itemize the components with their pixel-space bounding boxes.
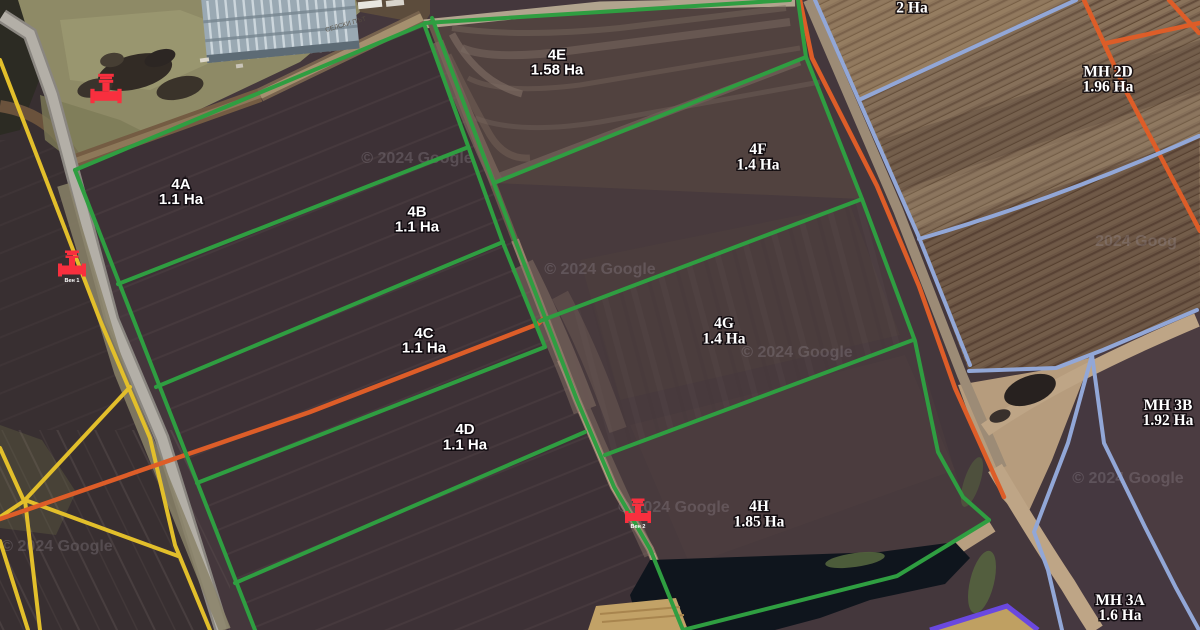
svg-text:© 2024 Google: © 2024 Google [544,261,655,278]
svg-text:Вен 1: Вен 1 [65,278,80,284]
svg-text:1.1 Ha: 1.1 Ha [402,340,447,357]
svg-text:4G: 4G [714,315,734,332]
svg-text:4H: 4H [749,498,769,515]
svg-text:1.1 Ha: 1.1 Ha [443,437,488,454]
svg-text:Вен 2: Вен 2 [631,524,646,530]
svg-text:1.1 Ha: 1.1 Ha [395,219,440,236]
svg-text:1.96 Ha: 1.96 Ha [1083,79,1134,96]
svg-text:2 Ha: 2 Ha [896,0,928,17]
svg-text:2024 Goog: 2024 Goog [1095,233,1177,250]
svg-text:1.6 Ha: 1.6 Ha [1098,607,1141,624]
svg-text:© 2024 Google: © 2024 Google [741,344,852,361]
svg-text:1.4 Ha: 1.4 Ha [702,331,745,348]
svg-text:© 2024 Google: © 2024 Google [1,538,112,555]
svg-text:1.92 Ha: 1.92 Ha [1143,412,1194,429]
svg-text:1.85 Ha: 1.85 Ha [734,514,785,531]
svg-text:1.4 Ha: 1.4 Ha [736,157,779,174]
svg-text:4F: 4F [749,141,766,158]
svg-text:© 2024 Google: © 2024 Google [1072,470,1183,487]
svg-text:4D: 4D [455,421,474,438]
svg-text:1.58 Ha: 1.58 Ha [531,62,584,79]
svg-text:1.1 Ha: 1.1 Ha [159,191,204,208]
